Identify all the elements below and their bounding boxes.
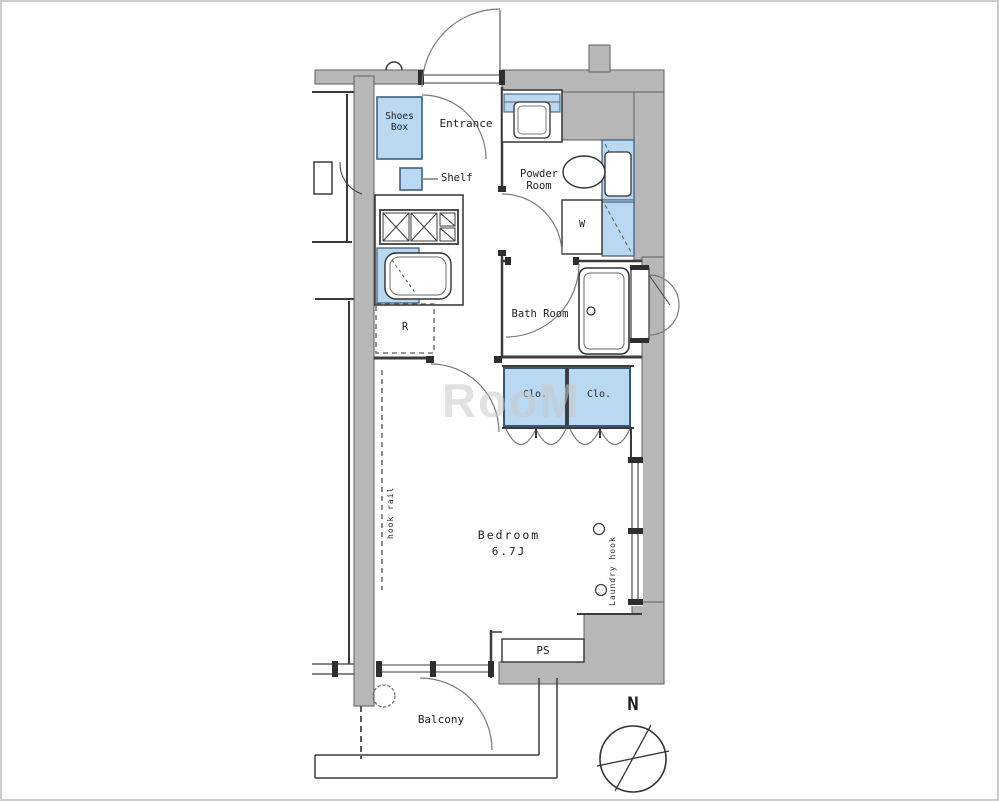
powder-room-label: Powder Room: [507, 168, 571, 192]
left-main-wall: [354, 76, 374, 706]
bedroom-label: Bedroom: [434, 529, 584, 542]
laundry-hook-point-bottom: [596, 585, 607, 596]
stove: [380, 210, 458, 244]
hook-rail-label: hook rail: [386, 454, 395, 539]
powder-room-door-arc: [502, 194, 562, 254]
compass-north-label: N: [612, 694, 654, 716]
compass: [597, 725, 669, 792]
balcony-window: [376, 661, 494, 677]
pipe-space-label: PS: [502, 645, 584, 658]
closet-folding-doors: [506, 429, 630, 445]
balcony-railing: [315, 678, 557, 778]
laundry-hook-point-top: [594, 524, 605, 535]
balcony-drain: [373, 685, 395, 707]
bedroom-window: [628, 457, 643, 606]
top-wall-stub: [589, 45, 610, 72]
entrance-label: Entrance: [427, 118, 505, 131]
kitchen-fixtures: [375, 97, 463, 353]
washbasin: [502, 90, 562, 142]
toilet-tank: [605, 152, 631, 196]
bath-room-label: Bath Room: [499, 308, 581, 320]
shoes-box-label: Shoes Box: [377, 112, 422, 134]
bedroom-size-label: 6.7J: [434, 546, 584, 559]
powder-top-wall-block: [562, 92, 640, 140]
top-right-wall: [502, 70, 664, 92]
compass-needle: [615, 725, 651, 791]
watermark: RooM: [442, 374, 581, 428]
shelf-label: Shelf: [441, 172, 473, 184]
laundry-hook-label: Laundry hook: [608, 514, 617, 606]
door-scope: [386, 62, 402, 70]
kitchen-sink: [377, 248, 451, 303]
right-wall-upper: [634, 92, 664, 260]
bath-door-arc: [506, 264, 579, 337]
shelf-box: [400, 168, 422, 190]
balcony-label: Balcony: [397, 714, 485, 727]
refrigerator-label: R: [376, 321, 434, 333]
floorplan-image: Shoes Box Entrance Shelf Powder Room W R…: [0, 0, 999, 801]
washing-machine-label: W: [562, 219, 602, 231]
